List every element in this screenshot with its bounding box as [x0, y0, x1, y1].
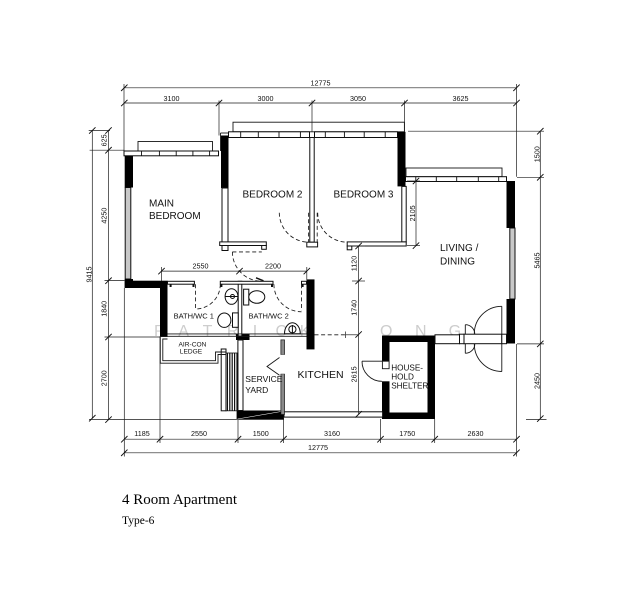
svg-text:2450: 2450 — [533, 373, 542, 389]
svg-text:2200: 2200 — [265, 262, 281, 271]
svg-text:T: T — [203, 323, 213, 340]
svg-text:BEDROOM 2: BEDROOM 2 — [242, 190, 302, 201]
svg-text:1750: 1750 — [399, 429, 415, 438]
svg-text:SERVICE: SERVICE — [245, 374, 282, 384]
svg-text:3000: 3000 — [258, 94, 274, 103]
svg-text:Type-6: Type-6 — [122, 515, 155, 527]
svg-text:KITCHEN: KITCHEN — [297, 369, 343, 381]
svg-text:1185: 1185 — [134, 429, 149, 438]
svg-text:12775: 12775 — [308, 443, 328, 452]
svg-text:2700: 2700 — [100, 370, 109, 386]
svg-text:I: I — [253, 323, 257, 340]
svg-text:625: 625 — [100, 134, 109, 146]
svg-text:2550: 2550 — [191, 429, 207, 438]
svg-text:2630: 2630 — [468, 429, 484, 438]
svg-text:9415: 9415 — [85, 267, 94, 283]
svg-text:12775: 12775 — [311, 79, 331, 88]
svg-text:BATH/WC 2: BATH/WC 2 — [249, 312, 289, 321]
svg-text:BEDROOM 3: BEDROOM 3 — [333, 190, 393, 201]
svg-text:MAIN: MAIN — [149, 199, 174, 210]
svg-text:LIVING /: LIVING / — [440, 243, 479, 254]
svg-text:3160: 3160 — [324, 429, 340, 438]
svg-text:DINING: DINING — [440, 257, 475, 268]
svg-text:2105: 2105 — [408, 205, 417, 221]
svg-text:3050: 3050 — [350, 94, 366, 103]
svg-text:BEDROOM: BEDROOM — [149, 211, 201, 222]
svg-text:4 Room Apartment: 4 Room Apartment — [122, 492, 238, 508]
svg-text:1840: 1840 — [100, 301, 109, 317]
svg-text:YARD: YARD — [245, 385, 268, 395]
svg-text:2615: 2615 — [350, 366, 359, 382]
svg-text:BATH/WC 1: BATH/WC 1 — [174, 312, 214, 321]
svg-text:HOUSE-: HOUSE- — [391, 363, 423, 372]
svg-text:3625: 3625 — [453, 94, 469, 103]
svg-text:AIR-CON: AIR-CON — [179, 341, 207, 348]
svg-text:2550: 2550 — [193, 262, 209, 271]
svg-text:3100: 3100 — [164, 94, 180, 103]
svg-text:1500: 1500 — [253, 429, 269, 438]
svg-text:SHELTER: SHELTER — [391, 382, 428, 391]
svg-text:5465: 5465 — [533, 253, 542, 269]
svg-text:1500: 1500 — [533, 146, 542, 162]
svg-text:4250: 4250 — [100, 208, 109, 224]
svg-text:A: A — [178, 323, 189, 340]
svg-text:HOLD: HOLD — [391, 373, 414, 382]
svg-text:LEDGE: LEDGE — [180, 348, 203, 355]
svg-text:1120: 1120 — [350, 256, 359, 271]
svg-text:1740: 1740 — [350, 300, 359, 316]
